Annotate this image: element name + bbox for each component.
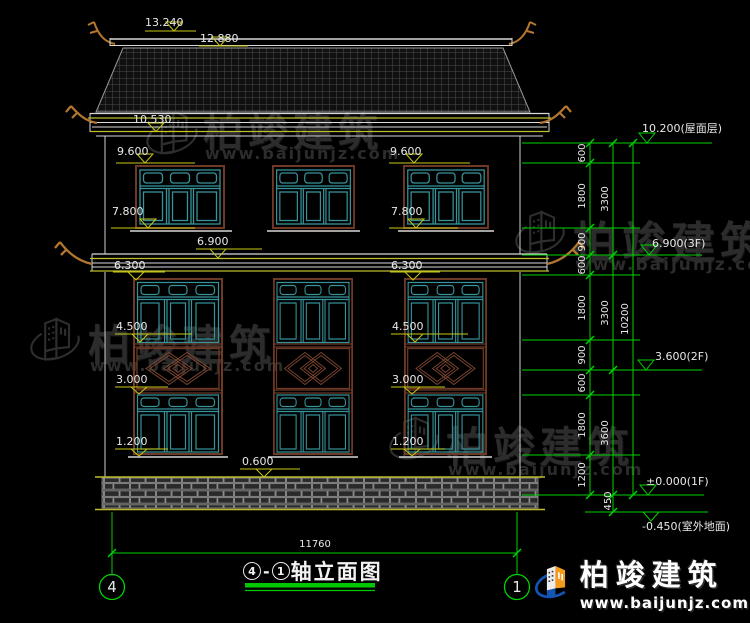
elev-label-2f: 3.600(2F) bbox=[655, 351, 708, 363]
window-unit-right bbox=[405, 279, 486, 454]
dim-1200: 1200 bbox=[576, 445, 590, 505]
elev-label-eave: 10.530 bbox=[133, 114, 172, 126]
elev-label-6300-mid: 6.300 bbox=[391, 260, 423, 272]
cad-canvas: 柏竣建筑 www.baijunjz.com 柏竣建筑 www.baijunjz.… bbox=[0, 0, 750, 623]
elev-label-7800-mid: 7.800 bbox=[391, 206, 423, 218]
elev-label-ground: -0.450(室外地面) bbox=[642, 521, 730, 533]
elev-label-roof-top: 12.880 bbox=[200, 33, 239, 45]
elev-label-1200-mid: 1.200 bbox=[392, 436, 424, 448]
title-separator: - bbox=[263, 562, 270, 581]
elev-label-6300-left: 6.300 bbox=[114, 260, 146, 272]
elev-label-6900: 6.900 bbox=[197, 236, 229, 248]
elev-label-ridge: 13.240 bbox=[145, 17, 184, 29]
lower-wall bbox=[105, 272, 520, 477]
title-axis-start: 4 bbox=[243, 562, 261, 580]
brand-logo-text: 柏竣建筑 bbox=[580, 552, 749, 594]
dim-3600: 3600 bbox=[599, 403, 613, 463]
title-axis-end: 1 bbox=[272, 562, 290, 580]
brand-logo-url: www.baijunjz.com bbox=[580, 594, 749, 612]
dim-overall-width: 11760 bbox=[285, 539, 345, 551]
elev-label-4500-mid: 4.500 bbox=[392, 321, 424, 333]
brand-logo-icon bbox=[533, 545, 576, 619]
dim-overall-height: 10200 bbox=[619, 289, 633, 349]
brand-logo: 柏竣建筑 www.baijunjz.com bbox=[533, 543, 749, 621]
window-unit-middle bbox=[274, 279, 352, 454]
dim-450: 450 bbox=[602, 471, 616, 531]
elev-label-3f: 6.900(3F) bbox=[652, 238, 705, 250]
drawing-title: 4 - 1 轴立面图 bbox=[243, 556, 383, 586]
third-floor-wall bbox=[105, 136, 520, 254]
stone-base bbox=[95, 477, 545, 510]
elev-label-3000-mid: 3.000 bbox=[392, 374, 424, 386]
elev-label-3000-left: 3.000 bbox=[116, 374, 148, 386]
dim-3300-b: 3300 bbox=[599, 283, 613, 343]
elev-label-9600-left: 9.600 bbox=[117, 146, 149, 158]
elevation-drawing bbox=[0, 0, 750, 623]
dim-3300-a: 3300 bbox=[599, 169, 613, 229]
axis-bubble-1: 1 bbox=[504, 574, 530, 600]
axis-bubble-4: 4 bbox=[99, 574, 125, 600]
elev-label-roof-level: 10.200(屋面层) bbox=[642, 123, 722, 135]
window-unit-left bbox=[134, 279, 222, 454]
title-text: 轴立面图 bbox=[291, 556, 383, 586]
elev-label-9600-mid: 9.600 bbox=[390, 146, 422, 158]
elev-label-1200-left: 1.200 bbox=[116, 436, 148, 448]
window-3f-middle bbox=[273, 166, 354, 228]
elev-label-0600: 0.600 bbox=[242, 456, 274, 468]
elev-label-4500-left: 4.500 bbox=[116, 321, 148, 333]
elev-label-1f: ±0.000(1F) bbox=[646, 476, 709, 488]
elev-label-7800-left: 7.800 bbox=[112, 206, 144, 218]
